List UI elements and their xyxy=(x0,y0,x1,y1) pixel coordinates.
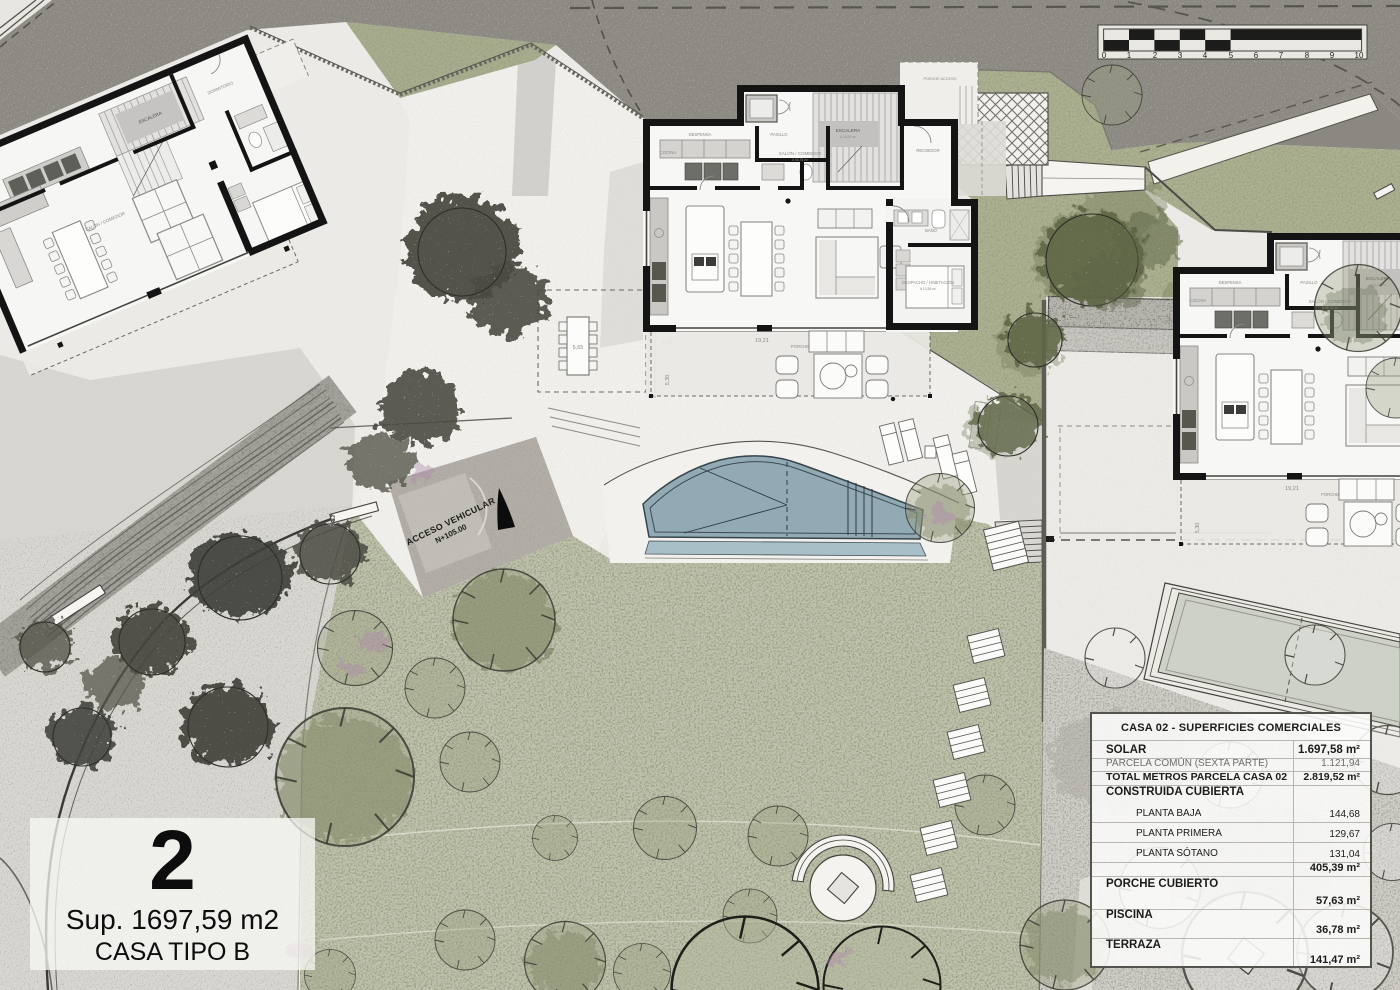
svg-text:19,21: 19,21 xyxy=(755,338,769,344)
svg-text:7: 7 xyxy=(1279,51,1284,60)
svg-text:BAÑO: BAÑO xyxy=(925,228,938,233)
svg-text:SALÓN / COMEDOR: SALÓN / COMEDOR xyxy=(779,150,822,156)
svg-text:DESPENSA: DESPENSA xyxy=(689,132,712,137)
svg-text:PORCHE ACCESO: PORCHE ACCESO xyxy=(923,77,956,81)
svg-text:1: 1 xyxy=(1127,51,1132,60)
svg-text:DESPACHO / HABITACIÓN: DESPACHO / HABITACIÓN xyxy=(902,280,954,285)
svg-text:5,65: 5,65 xyxy=(573,345,584,351)
svg-text:6: 6 xyxy=(1254,51,1259,60)
svg-text:PASILLO: PASILLO xyxy=(770,132,788,137)
svg-text:8: 8 xyxy=(1305,51,1310,60)
svg-text:10: 10 xyxy=(1355,51,1364,60)
svg-text:A 56,75 m²: A 56,75 m² xyxy=(792,158,809,162)
svg-text:3: 3 xyxy=(1178,51,1183,60)
svg-text:ESCALERA: ESCALERA xyxy=(836,128,861,133)
svg-text:5: 5 xyxy=(1229,51,1234,60)
svg-text:A 13,35 m²: A 13,35 m² xyxy=(920,287,937,291)
svg-text:4: 4 xyxy=(1203,51,1208,60)
svg-text:0: 0 xyxy=(1102,51,1107,60)
svg-text:COCINA: COCINA xyxy=(660,150,676,155)
svg-text:RECIBIDOR: RECIBIDOR xyxy=(916,148,939,153)
svg-text:5,30: 5,30 xyxy=(665,375,671,386)
svg-text:A 11,00 m²: A 11,00 m² xyxy=(840,135,857,139)
svg-text:9: 9 xyxy=(1330,51,1335,60)
svg-text:2: 2 xyxy=(1153,51,1158,60)
svg-text:PORCHE: PORCHE xyxy=(791,344,809,349)
